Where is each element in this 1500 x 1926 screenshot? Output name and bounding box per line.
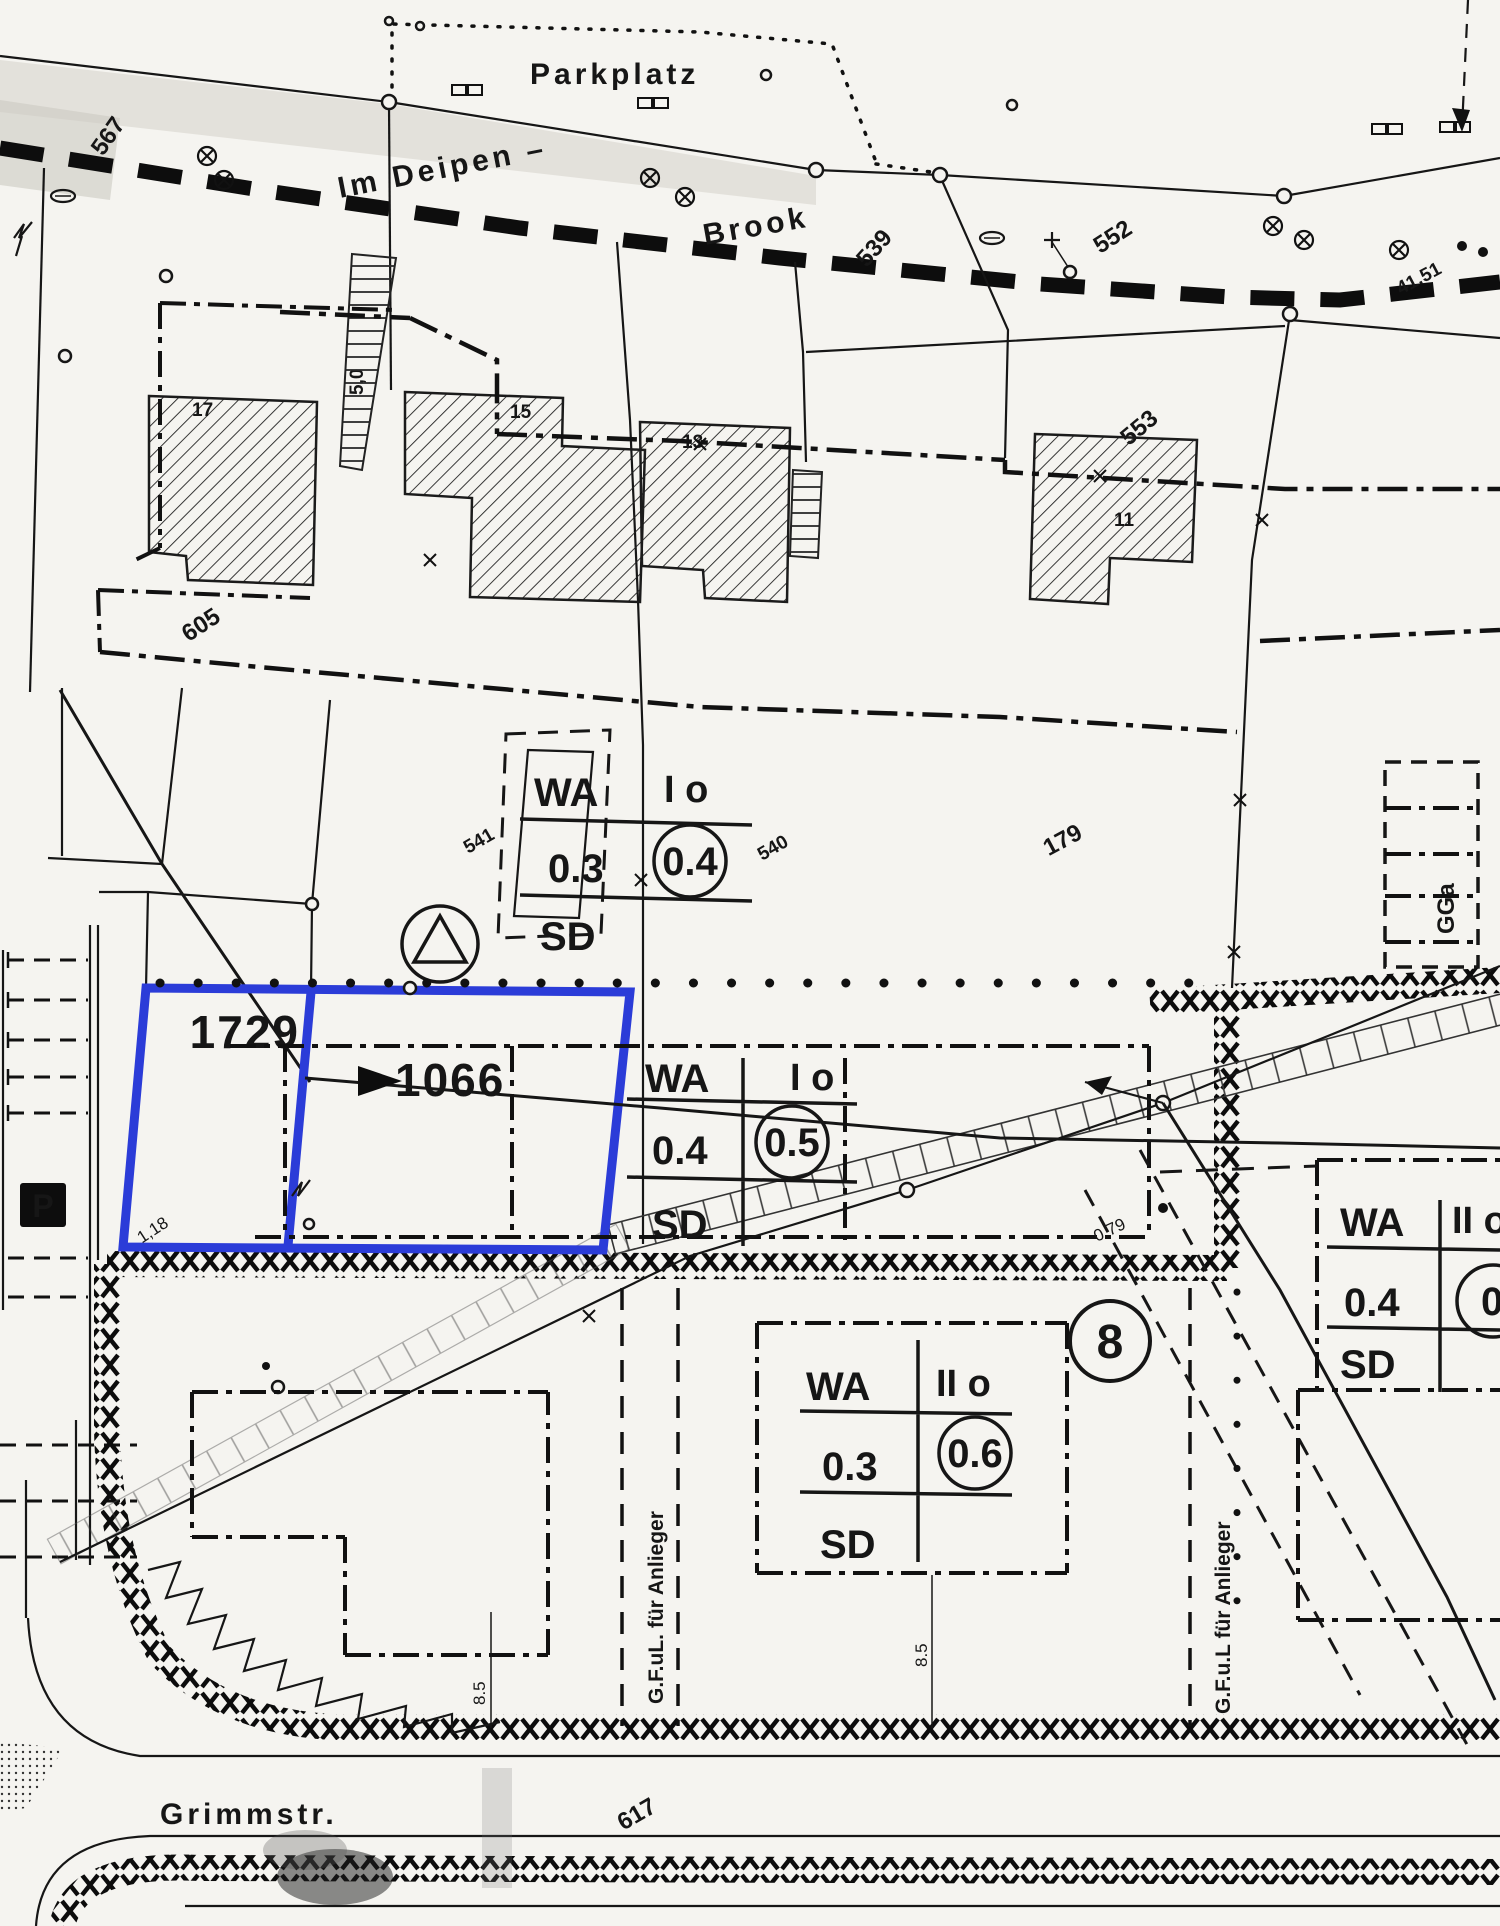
map-canvas: Parkplatz Im Deipen – Brook 567 539 552 … [0, 0, 1500, 1926]
z1-use: WA [534, 771, 598, 815]
z3-grz: 0.3 [822, 1445, 878, 1489]
label-parkplatz: Parkplatz [530, 58, 699, 91]
z1-grz: 0.3 [548, 847, 604, 891]
z2-gfz: 0.5 [764, 1121, 820, 1165]
label-gga: GGa [1433, 883, 1460, 934]
parking-p-symbol: P [32, 1188, 53, 1224]
label-building-15: 15 [510, 402, 532, 423]
z4-gfz: 0.5 [1481, 1280, 1500, 1324]
z4-use: WA [1340, 1201, 1404, 1245]
z2-grz: 0.4 [652, 1129, 708, 1173]
z3-roof: SD [820, 1523, 876, 1567]
label-8-5-right: 8.5 [912, 1643, 931, 1667]
z4-floors: II o [1452, 1200, 1500, 1242]
zoning-map: Parkplatz Im Deipen – Brook 567 539 552 … [0, 0, 1500, 1926]
label-building-11: 11 [1114, 510, 1135, 531]
z1-floors: I o [664, 769, 708, 811]
z1-roof: SD [540, 915, 596, 959]
label-grimmstr: Grimmstr. [160, 1798, 338, 1831]
label-block-8: 8 [1097, 1316, 1124, 1369]
z3-floors: II o [936, 1363, 991, 1405]
paper-background [0, 0, 1500, 1926]
z2-use: WA [645, 1057, 709, 1101]
label-parcel-1066: 1066 [395, 1054, 505, 1106]
z4-roof: SD [1340, 1343, 1396, 1387]
label-anlieger-right: G.F.u.L für Anlieger [1212, 1521, 1235, 1714]
z3-use: WA [806, 1365, 870, 1409]
label-anlieger-left: G.F.uL. für Anlieger [645, 1511, 668, 1704]
label-8-5-left: 8.5 [470, 1681, 489, 1705]
z4-grz: 0.4 [1344, 1281, 1400, 1325]
stairs-strip-13 [790, 470, 822, 558]
z1-gfz: 0.4 [662, 840, 718, 884]
z3-gfz: 0.6 [947, 1432, 1003, 1476]
label-building-17: 17 [192, 400, 213, 421]
z2-roof: SD [652, 1203, 708, 1247]
z2-floors: I o [790, 1057, 834, 1099]
